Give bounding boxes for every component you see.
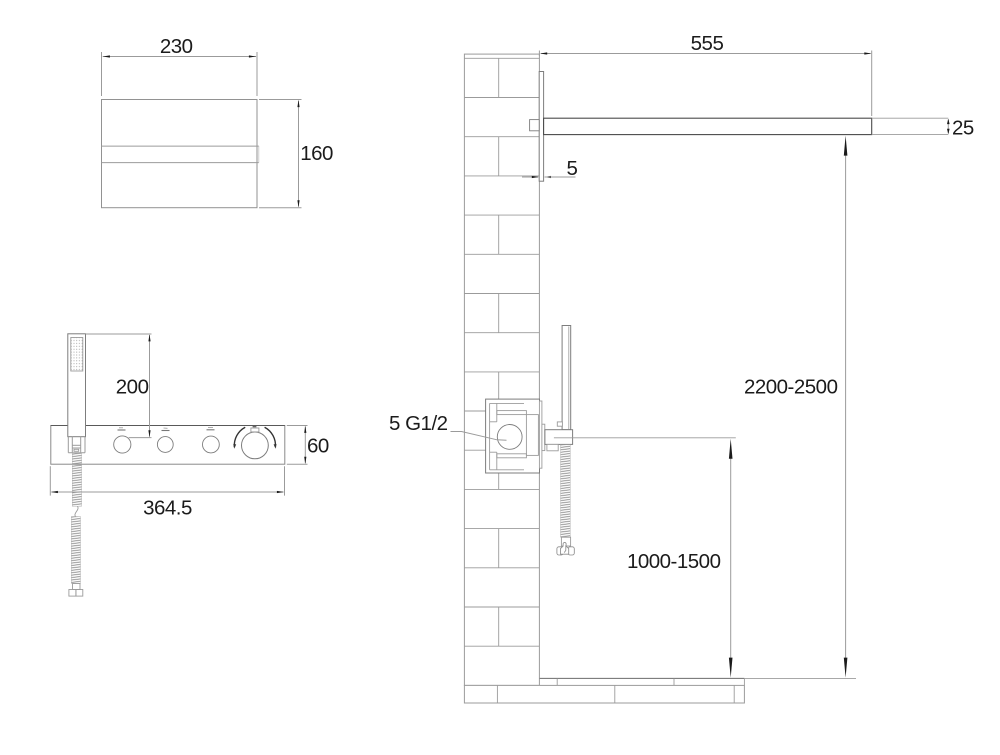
svg-text:5: 5	[567, 157, 578, 180]
svg-text:160: 160	[300, 142, 333, 165]
svg-text:60: 60	[307, 435, 329, 458]
svg-text:5 G1/2: 5 G1/2	[389, 412, 448, 435]
svg-text:2200-2500: 2200-2500	[744, 376, 838, 399]
svg-text:555: 555	[691, 32, 724, 55]
svg-text:230: 230	[160, 35, 193, 58]
svg-text:364.5: 364.5	[143, 497, 192, 520]
svg-text:200: 200	[116, 376, 149, 399]
svg-text:25: 25	[952, 117, 974, 140]
svg-text:1000-1500: 1000-1500	[627, 550, 721, 573]
